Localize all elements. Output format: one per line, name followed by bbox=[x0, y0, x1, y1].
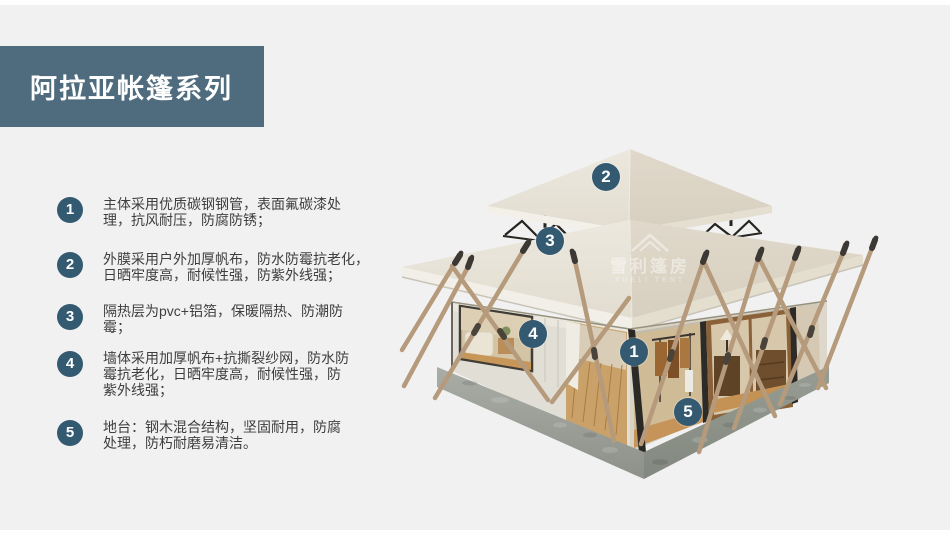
tent-illustration bbox=[0, 0, 950, 534]
tent-marker-5: 5 bbox=[674, 398, 702, 426]
tent-marker-2: 2 bbox=[592, 163, 620, 191]
product-slide: 阿拉亚帐篷系列 1 主体采用优质碳钢钢管，表面氟碳漆处 理，抗风耐压，防腐防锈；… bbox=[0, 0, 950, 534]
tent-marker-4: 4 bbox=[519, 320, 547, 348]
tent-marker-3: 3 bbox=[536, 227, 564, 255]
tent-marker-1: 1 bbox=[620, 338, 648, 366]
